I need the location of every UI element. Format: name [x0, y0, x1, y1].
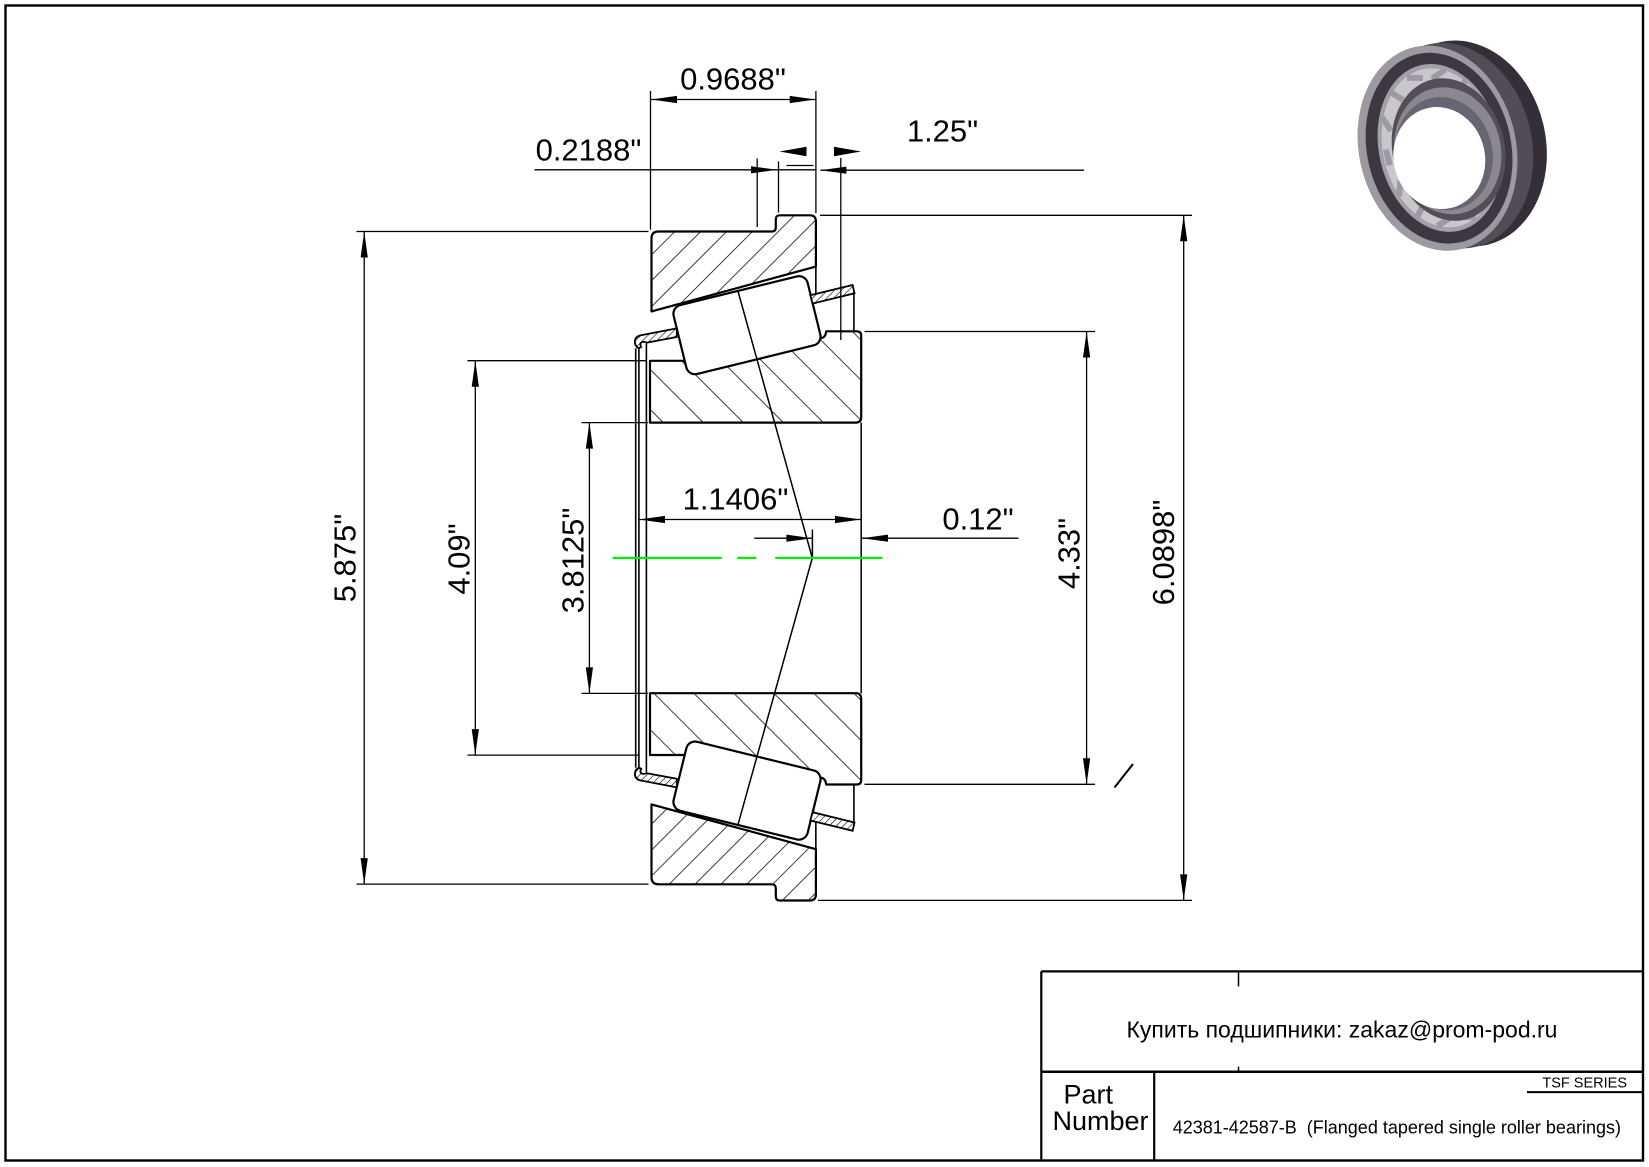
- svg-text:4.09": 4.09": [442, 523, 477, 594]
- svg-text:4.33": 4.33": [1052, 518, 1087, 589]
- svg-text:5.875": 5.875": [328, 514, 363, 603]
- svg-text:TSF SERIES: TSF SERIES: [1542, 1075, 1627, 1091]
- svg-text:3.8125": 3.8125": [556, 508, 591, 614]
- svg-text:0.9688": 0.9688": [680, 62, 786, 97]
- svg-text:Part: Part: [1064, 1080, 1114, 1110]
- svg-text:6.0898": 6.0898": [1146, 500, 1181, 606]
- svg-text:42381-42587-B (Flanged tapere: 42381-42587-B (Flanged tapered single ro…: [1173, 1118, 1621, 1138]
- svg-text:1.25": 1.25": [907, 114, 978, 149]
- svg-text:0.12": 0.12": [942, 502, 1013, 537]
- svg-text:1.1406": 1.1406": [683, 482, 789, 517]
- svg-text:0.2188": 0.2188": [536, 133, 642, 168]
- svg-text:Number: Number: [1053, 1106, 1149, 1136]
- svg-text:Купить подшипники: zakaz@prom-: Купить подшипники: zakaz@prom-pod.ru: [1127, 1017, 1558, 1043]
